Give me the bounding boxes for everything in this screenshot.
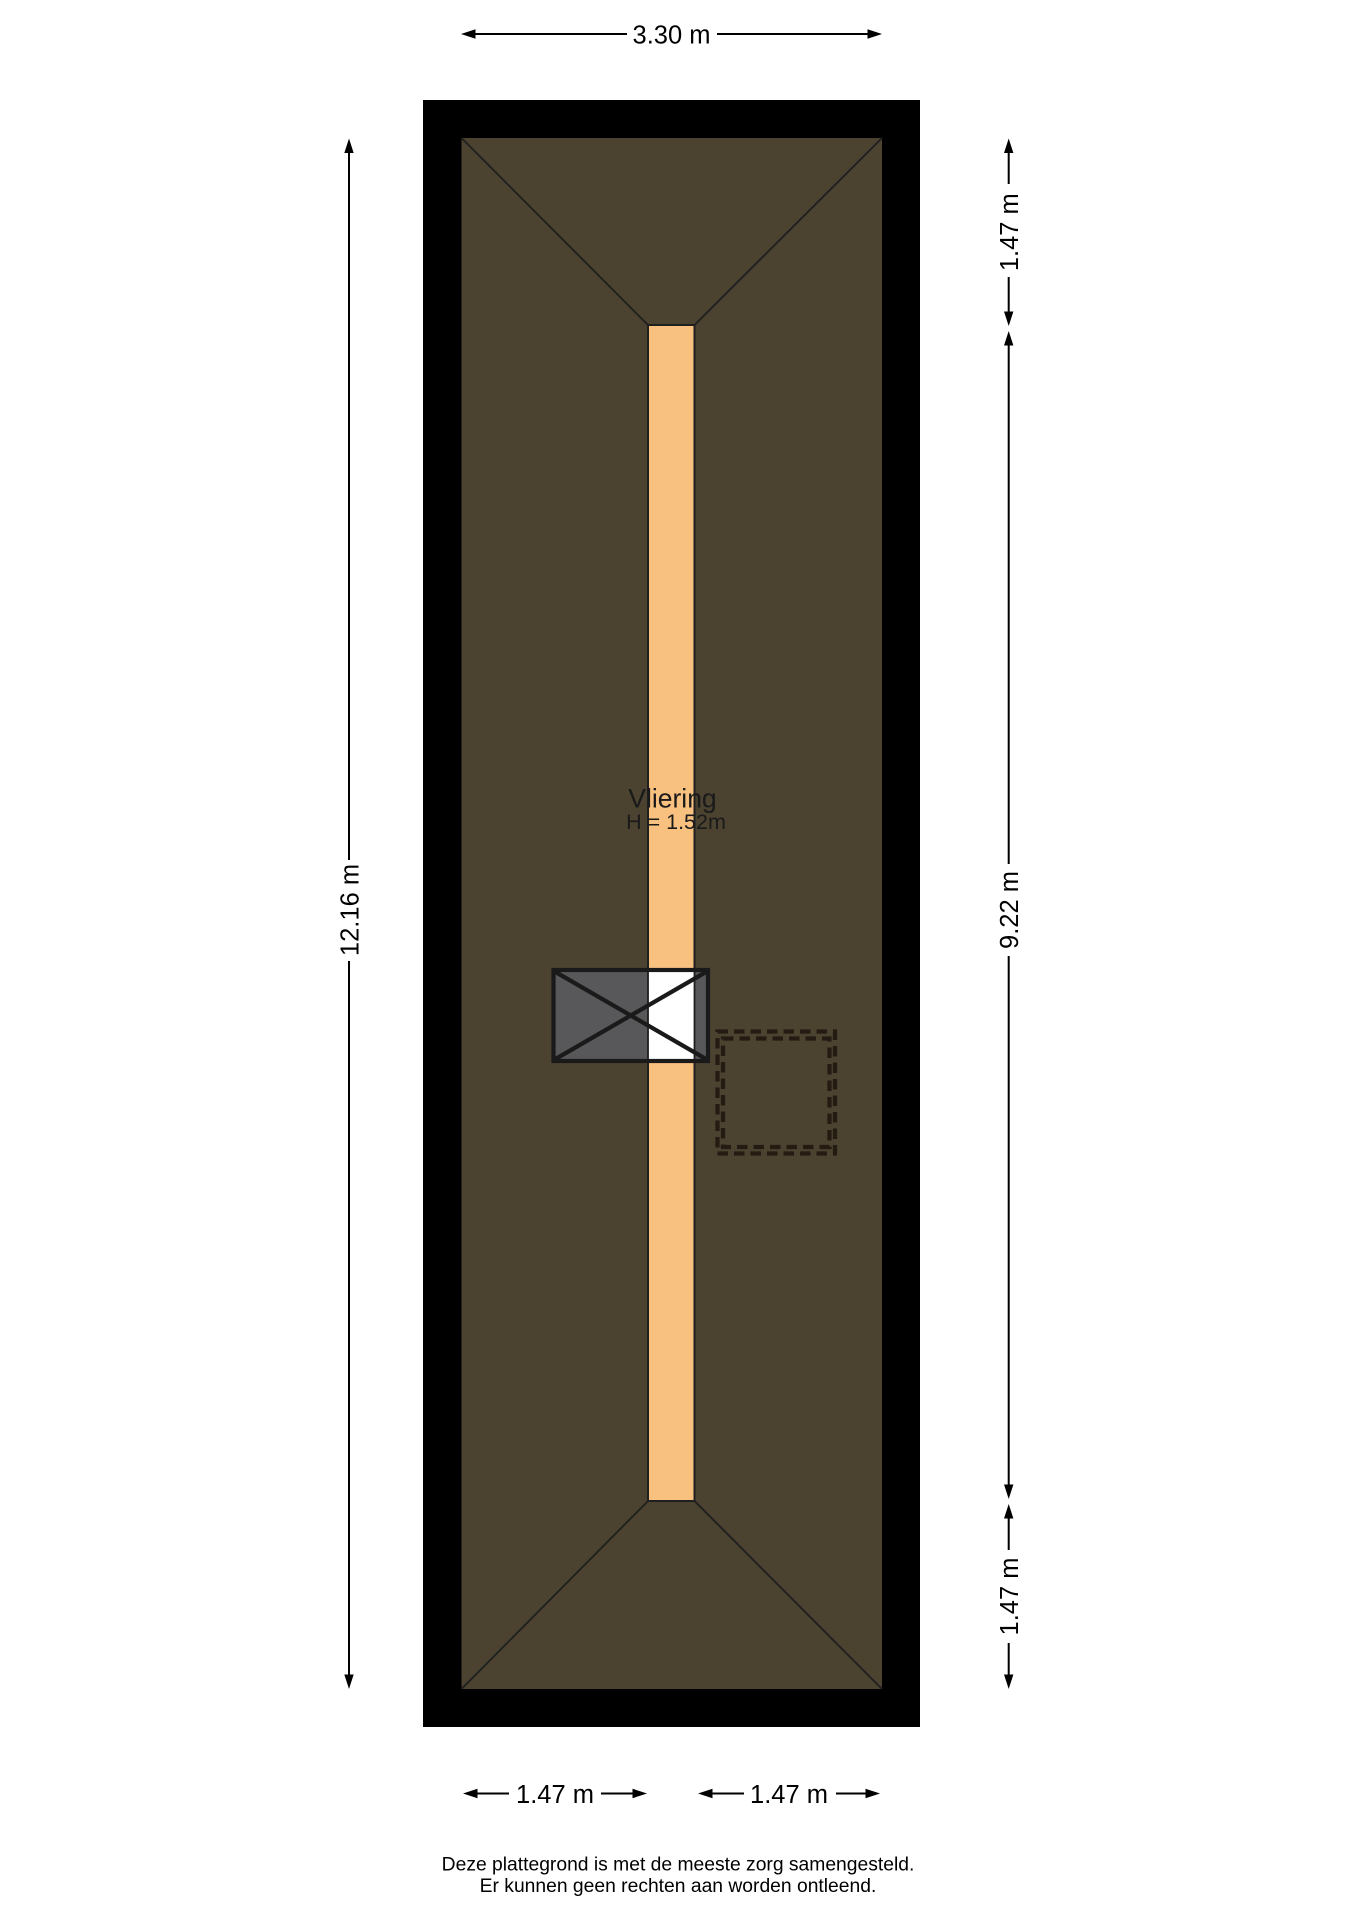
svg-text:Er kunnen geen rechten aan wor: Er kunnen geen rechten aan worden ontlee… <box>480 1876 877 1897</box>
svg-text:Vliering: Vliering <box>628 784 716 814</box>
svg-text:12.16 m: 12.16 m <box>336 864 364 956</box>
svg-text:1.47 m: 1.47 m <box>996 193 1024 271</box>
svg-text:1.47 m: 1.47 m <box>750 1781 828 1809</box>
svg-text:H = 1.52m: H = 1.52m <box>626 810 726 834</box>
svg-text:Deze plattegrond is met de mee: Deze plattegrond is met de meeste zorg s… <box>442 1854 915 1875</box>
svg-text:1.47 m: 1.47 m <box>516 1781 594 1809</box>
svg-text:3.30 m: 3.30 m <box>633 21 711 49</box>
svg-text:9.22 m: 9.22 m <box>996 871 1024 949</box>
svg-text:1.47 m: 1.47 m <box>996 1558 1024 1636</box>
